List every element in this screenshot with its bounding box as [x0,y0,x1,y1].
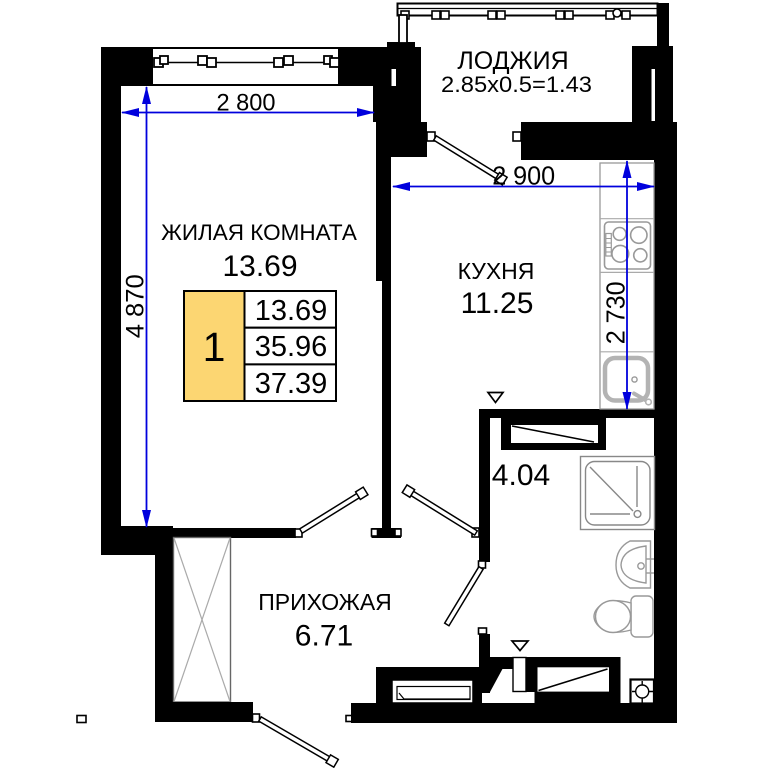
svg-text:13.69: 13.69 [222,250,297,283]
svg-text:37.39: 37.39 [255,368,328,400]
svg-text:35.96: 35.96 [255,331,328,363]
svg-text:1: 1 [203,324,226,370]
svg-text:КУХНЯ: КУХНЯ [458,258,535,284]
svg-text:2 900: 2 900 [492,160,555,190]
svg-text:2.85х0.5=1.43: 2.85х0.5=1.43 [441,72,592,97]
svg-text:13.69: 13.69 [255,295,328,327]
svg-text:ПРИХОЖАЯ: ПРИХОЖАЯ [258,589,392,615]
svg-text:2 800: 2 800 [217,89,276,116]
svg-text:11.25: 11.25 [461,287,534,320]
svg-text:ЖИЛАЯ КОМНАТА: ЖИЛАЯ КОМНАТА [161,220,357,245]
svg-text:2 730: 2 730 [600,281,630,344]
svg-text:6.71: 6.71 [295,620,353,653]
svg-text:4.04: 4.04 [492,459,550,492]
svg-text:ЛОДЖИЯ: ЛОДЖИЯ [457,47,568,75]
svg-text:4 870: 4 870 [122,274,150,338]
